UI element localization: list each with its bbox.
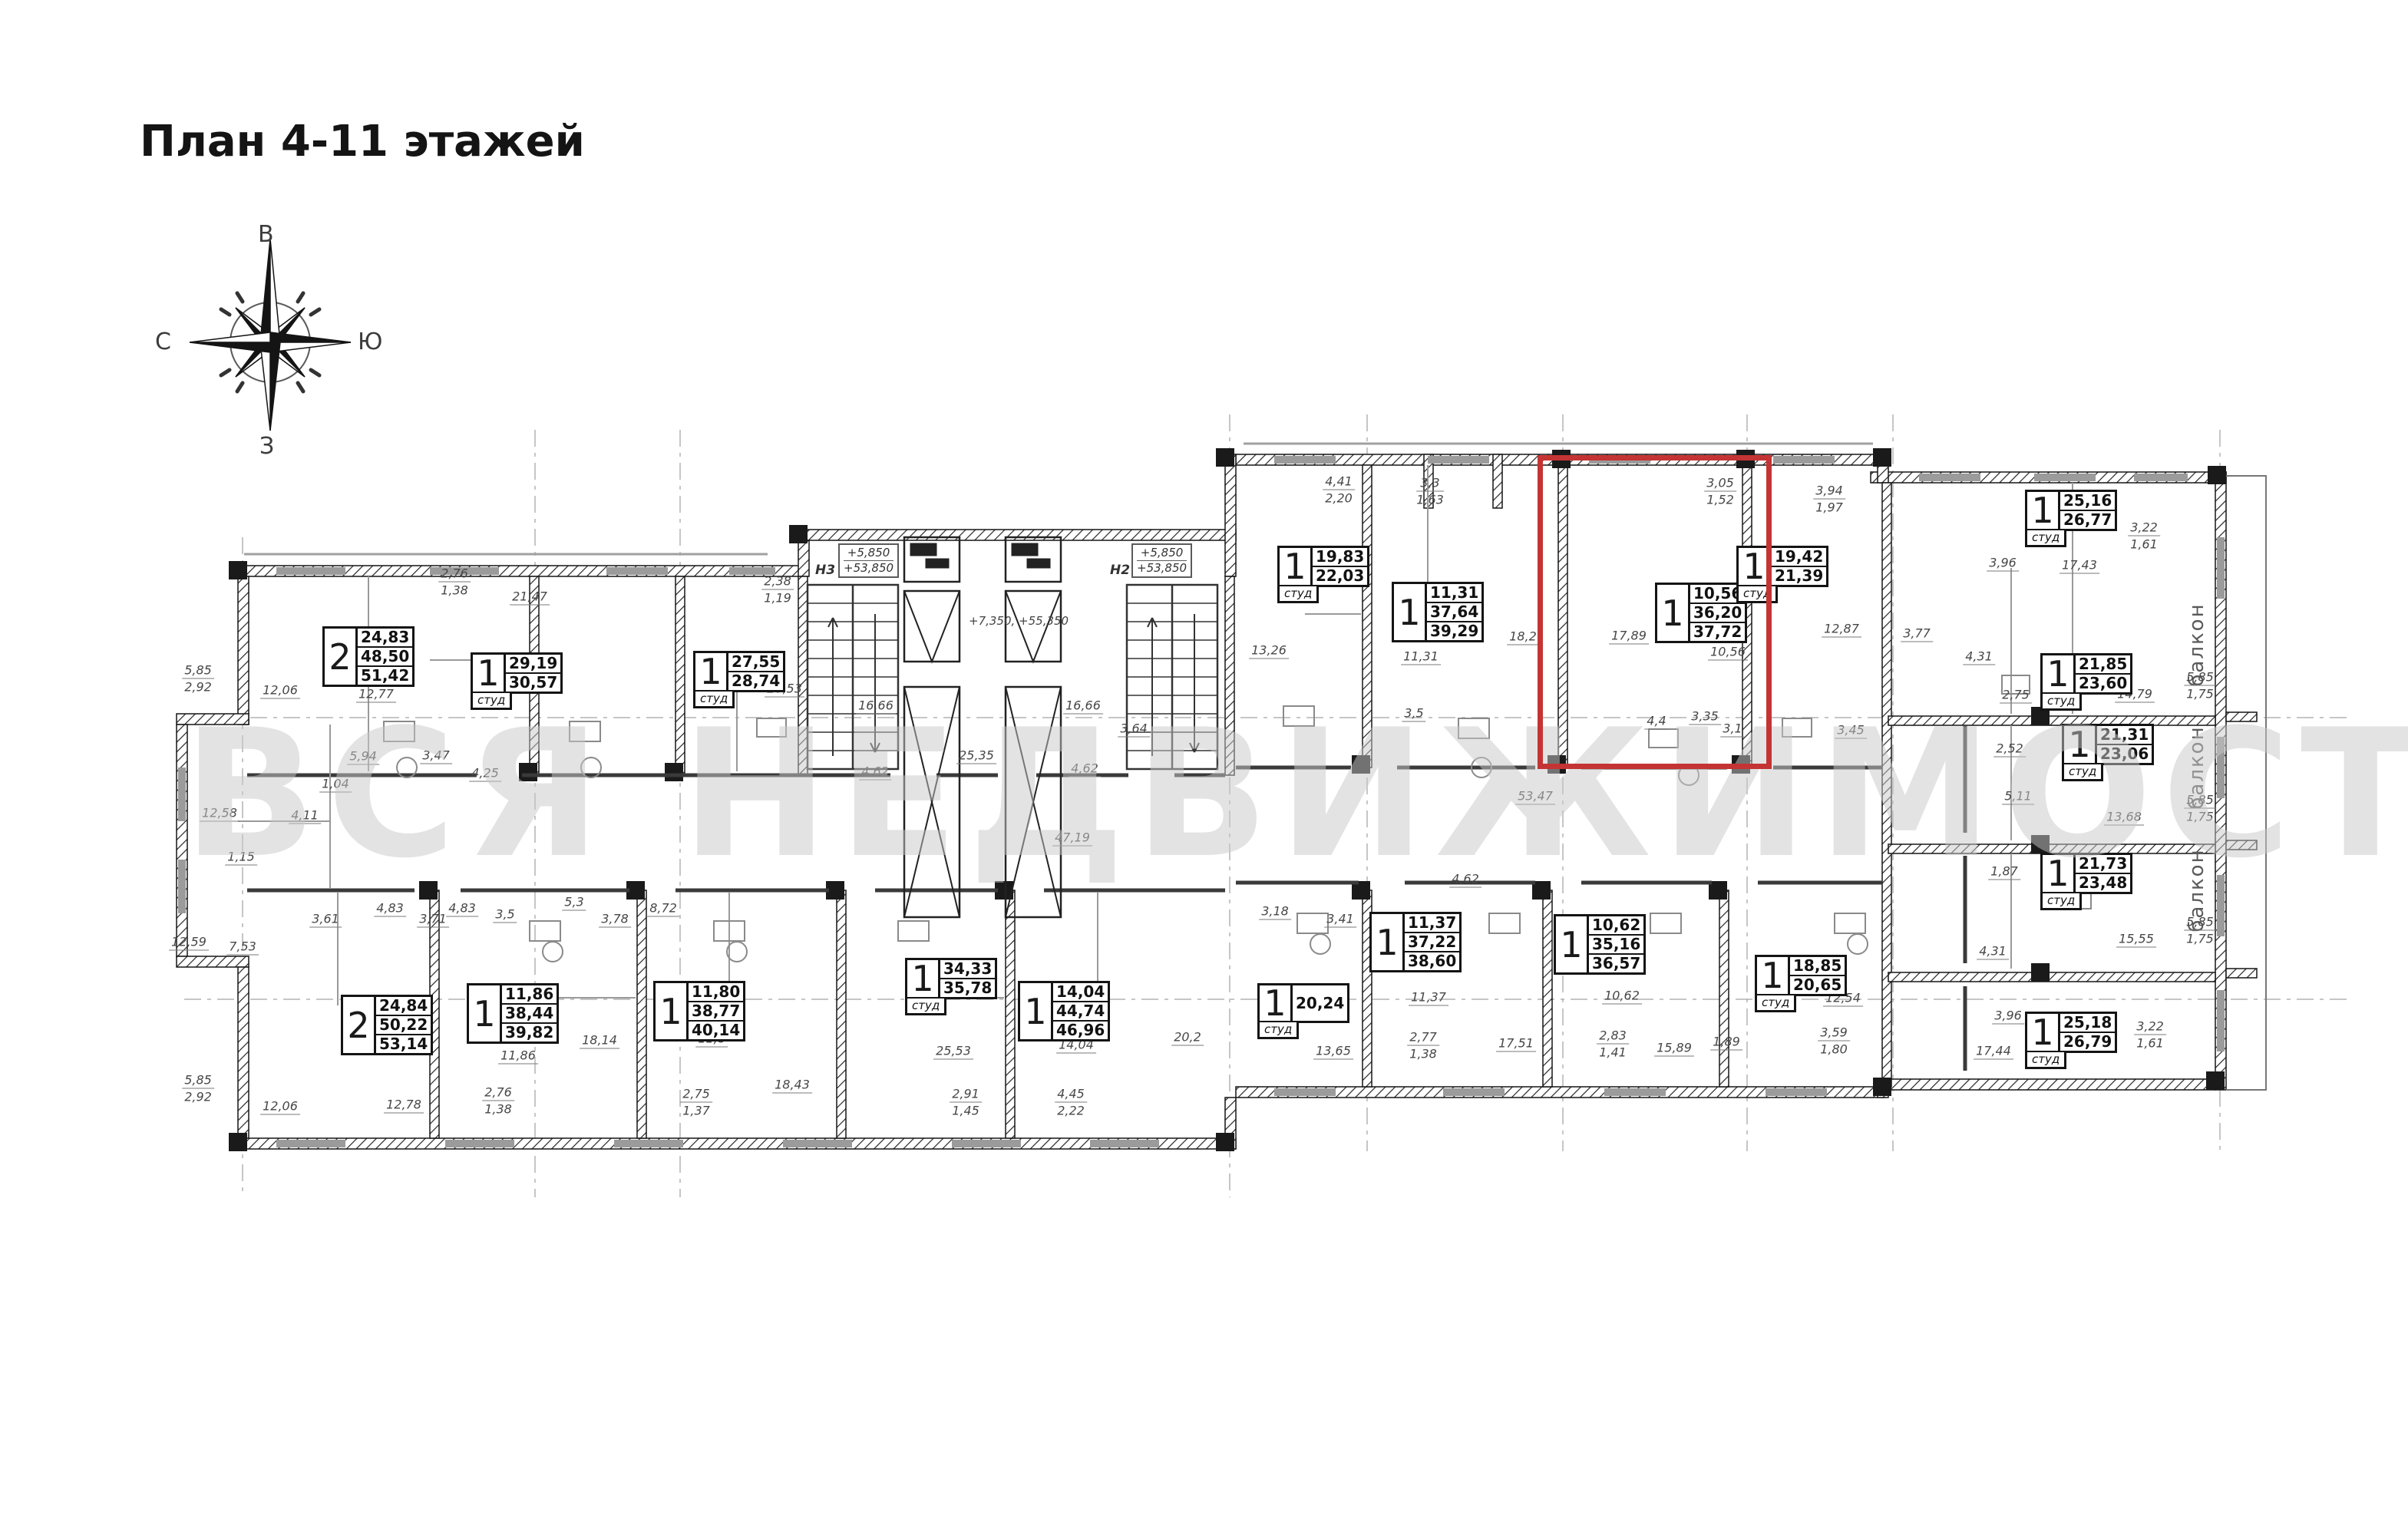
dimension: 3,41 bbox=[1324, 912, 1356, 928]
dimension: 5,851,75 bbox=[2184, 793, 2216, 824]
level-upper: +5,850 bbox=[844, 546, 894, 561]
unit-area-value: 37,22 bbox=[1405, 933, 1459, 952]
core-elevation-note: +7,350, +55,350 bbox=[969, 614, 1069, 628]
dimension: 13,26 bbox=[1249, 643, 1289, 659]
unit-studio-tag: студ bbox=[1755, 994, 1796, 1012]
stair-tag-right: Н2 bbox=[1110, 563, 1130, 578]
unit-areas: 27,5528,74 bbox=[728, 653, 783, 690]
unit-area-value: 24,83 bbox=[358, 629, 412, 648]
dimension: 3,45 bbox=[1835, 723, 1867, 739]
dimension: 4,31 bbox=[1963, 649, 1995, 665]
unit-areas: 20,24 bbox=[1293, 985, 1347, 1021]
unit-area-value: 25,16 bbox=[2060, 492, 2115, 511]
compass-label-left: С bbox=[155, 328, 171, 355]
unit-room-count: 1 bbox=[2043, 855, 2076, 892]
unit-label: 111,3737,2238,60 bbox=[1369, 912, 1462, 972]
dimension: 13,68 bbox=[2104, 810, 2144, 826]
level-upper: +5,850 bbox=[1137, 546, 1187, 561]
unit-area-value: 20,65 bbox=[1790, 976, 1845, 994]
dimension: 4,25 bbox=[469, 766, 501, 782]
stair-levels-left: +5,850 +53,850 bbox=[838, 543, 899, 578]
dimension: 20,2 bbox=[1171, 1030, 1204, 1046]
unit-area-value: 44,74 bbox=[1053, 1002, 1108, 1022]
unit-areas: 14,0444,7446,96 bbox=[1053, 983, 1108, 1039]
unit-label: 111,8038,7740,14 bbox=[653, 981, 745, 1041]
unit-studio-tag: студ bbox=[471, 692, 512, 710]
walls bbox=[177, 454, 2257, 1149]
elevator-2 bbox=[1006, 537, 1061, 917]
unit-label: 121,8523,60студ bbox=[2040, 653, 2132, 695]
unit-room-count: 1 bbox=[2043, 655, 2076, 692]
unit-room-count: 1 bbox=[907, 960, 940, 997]
unit-areas: 11,3737,2238,60 bbox=[1405, 914, 1459, 970]
dimension: 2,75 bbox=[2000, 688, 2032, 704]
dimension: 3,591,80 bbox=[1818, 1025, 1850, 1057]
dimension: 2,761,38 bbox=[438, 566, 471, 598]
dimension: 25,53 bbox=[933, 1044, 973, 1060]
unit-area-value: 53,14 bbox=[376, 1035, 431, 1053]
unit-room-count: 1 bbox=[1394, 584, 1427, 640]
dimension: 1,89 bbox=[1710, 1035, 1742, 1051]
compass-label-top: В bbox=[258, 221, 274, 248]
dimension: 4,11 bbox=[289, 808, 321, 824]
unit-label: 111,3137,6439,29 bbox=[1392, 582, 1484, 642]
dimension: 4,83 bbox=[374, 901, 406, 917]
dimension: 2,761,38 bbox=[482, 1085, 514, 1117]
dimension: 12,87 bbox=[1822, 622, 1861, 638]
unit-area-value: 11,80 bbox=[689, 983, 743, 1002]
dimension: 11,31 bbox=[1401, 649, 1441, 665]
unit-area-value: 14,04 bbox=[1053, 983, 1108, 1002]
floor-plan-page: План 4-11 этажей bbox=[0, 0, 2408, 1535]
unit-studio-tag: студ bbox=[2062, 763, 2103, 781]
unit-area-value: 22,03 bbox=[1313, 567, 1367, 585]
dimension: 3,47 bbox=[420, 748, 452, 764]
dimension: 13,65 bbox=[1313, 1044, 1353, 1060]
dimension: 2,911,45 bbox=[950, 1087, 982, 1118]
unit-area-value: 11,86 bbox=[502, 985, 557, 1005]
unit-area-value: 10,62 bbox=[1589, 916, 1643, 936]
dimension: 3,77 bbox=[1901, 626, 1933, 642]
level-lower: +53,850 bbox=[844, 561, 894, 576]
unit-area-value: 37,64 bbox=[1427, 603, 1481, 622]
unit-studio-tag: студ bbox=[2025, 529, 2066, 547]
unit-area-value: 23,06 bbox=[2097, 745, 2152, 763]
dimension: 1,04 bbox=[319, 777, 352, 793]
staircase-left bbox=[808, 585, 898, 769]
unit-room-count: 1 bbox=[1556, 916, 1589, 972]
dimension: 4,62 bbox=[859, 764, 891, 781]
dimension: 5,94 bbox=[347, 749, 379, 765]
unit-room-count: 1 bbox=[1260, 985, 1293, 1021]
unit-studio-tag: студ bbox=[2040, 892, 2082, 910]
unit-area-value: 18,85 bbox=[1790, 957, 1845, 976]
unit-label: 134,3335,78студ bbox=[905, 958, 997, 999]
unit-room-count: 1 bbox=[2064, 726, 2097, 763]
highlighted-unit-outline bbox=[1538, 455, 1772, 769]
unit-areas: 21,7323,48 bbox=[2076, 855, 2130, 892]
unit-area-value: 40,14 bbox=[689, 1022, 743, 1039]
unit-area-value: 23,60 bbox=[2076, 675, 2130, 692]
unit-areas: 25,1826,79 bbox=[2060, 1014, 2115, 1051]
unit-area-value: 36,57 bbox=[1589, 955, 1643, 972]
unit-area-value: 38,44 bbox=[502, 1005, 557, 1024]
unit-studio-tag: студ bbox=[1257, 1021, 1299, 1039]
unit-room-count: 2 bbox=[325, 629, 358, 685]
unit-area-value: 39,29 bbox=[1427, 622, 1481, 640]
dimension: 4,452,22 bbox=[1055, 1087, 1087, 1118]
unit-areas: 21,3123,06 bbox=[2097, 726, 2152, 763]
staircase-right bbox=[1127, 585, 1217, 769]
unit-areas: 19,8322,03 bbox=[1313, 548, 1367, 585]
unit-room-count: 1 bbox=[2027, 492, 2060, 529]
dimension: 3,78 bbox=[599, 912, 631, 928]
dimension: 3,64 bbox=[1118, 721, 1150, 738]
dimension: 4,62 bbox=[1069, 761, 1101, 777]
dimension: 11,37 bbox=[1409, 990, 1448, 1006]
unit-area-value: 48,50 bbox=[358, 648, 412, 667]
dimension: 3,31,63 bbox=[1416, 476, 1444, 507]
unit-label: 125,1626,77студ bbox=[2025, 490, 2117, 531]
dimension: 47,19 bbox=[1052, 830, 1092, 847]
dimension: 12,06 bbox=[260, 683, 300, 699]
unit-area-value: 11,31 bbox=[1427, 584, 1481, 603]
dimension: 17,51 bbox=[1496, 1036, 1536, 1052]
unit-label: 125,1826,79студ bbox=[2025, 1012, 2117, 1053]
dimension: 18,43 bbox=[772, 1078, 812, 1094]
unit-label: 111,8638,4439,82 bbox=[467, 983, 559, 1044]
dimension: 3,96 bbox=[1987, 556, 2019, 572]
dimension: 3,5 bbox=[1402, 706, 1425, 722]
unit-area-value: 35,78 bbox=[940, 979, 995, 997]
unit-area-value: 35,16 bbox=[1589, 936, 1643, 955]
unit-area-value: 20,24 bbox=[1293, 995, 1347, 1012]
dimension: 5,3 bbox=[562, 895, 586, 911]
dimension: 3,5 bbox=[493, 907, 517, 923]
stair-tag-left: Н3 bbox=[815, 563, 835, 578]
dimension: 2,751,37 bbox=[680, 1087, 712, 1118]
unit-area-value: 26,79 bbox=[2060, 1033, 2115, 1051]
dimension: 1,15 bbox=[225, 850, 257, 866]
dimension: 25,35 bbox=[956, 748, 996, 764]
unit-room-count: 1 bbox=[469, 985, 502, 1041]
dimension: 2,381,19 bbox=[761, 574, 794, 606]
unit-area-value: 25,18 bbox=[2060, 1014, 2115, 1033]
dimension: 3,221,61 bbox=[2128, 520, 2160, 552]
dimension: 15,55 bbox=[2116, 932, 2156, 948]
dimension: 1,87 bbox=[1988, 864, 2020, 880]
unit-area-value: 24,84 bbox=[376, 997, 431, 1016]
unit-area-value: 39,82 bbox=[502, 1024, 557, 1041]
dimension: 4,83 bbox=[446, 901, 478, 917]
unit-area-value: 46,96 bbox=[1053, 1022, 1108, 1039]
dimension: 3,61 bbox=[309, 912, 342, 928]
dimension: 8,72 bbox=[647, 901, 679, 917]
unit-studio-tag: студ bbox=[1277, 585, 1319, 603]
unit-areas: 25,1626,77 bbox=[2060, 492, 2115, 529]
unit-label: 224,8450,2253,14 bbox=[341, 995, 433, 1055]
unit-room-count: 1 bbox=[2027, 1014, 2060, 1051]
dimension: 18,14 bbox=[580, 1033, 619, 1049]
unit-label: 127,5528,74студ bbox=[693, 651, 785, 692]
unit-area-value: 29,19 bbox=[506, 655, 560, 674]
unit-label: 224,8348,5051,42 bbox=[322, 626, 415, 687]
unit-area-value: 19,83 bbox=[1313, 548, 1367, 567]
dimension: 5,852,92 bbox=[182, 1073, 214, 1104]
dimension: 4,31 bbox=[1977, 944, 2009, 960]
stair-levels-right: +5,850 +53,850 bbox=[1131, 543, 1192, 578]
dimension: 4,412,20 bbox=[1323, 474, 1355, 506]
unit-areas: 29,1930,57 bbox=[506, 655, 560, 692]
unit-area-value: 21,85 bbox=[2076, 655, 2130, 675]
unit-areas: 11,3137,6439,29 bbox=[1427, 584, 1481, 640]
dimension: 5,852,92 bbox=[182, 663, 214, 695]
unit-areas: 18,8520,65 bbox=[1790, 957, 1845, 994]
dimension: 2,52 bbox=[1993, 741, 2026, 758]
dimension: 3,71 bbox=[417, 912, 449, 928]
dimension: 17,44 bbox=[1974, 1044, 2013, 1060]
dimension: 3,96 bbox=[1992, 1008, 2024, 1025]
unit-label: 120,24студ bbox=[1257, 983, 1349, 1023]
unit-area-value: 26,77 bbox=[2060, 511, 2115, 529]
balcony-outline bbox=[2226, 476, 2266, 1090]
unit-area-value: 38,60 bbox=[1405, 952, 1459, 970]
dimension: 3,941,97 bbox=[1813, 484, 1845, 515]
dimension: 12,06 bbox=[260, 1099, 300, 1115]
unit-room-count: 1 bbox=[695, 653, 728, 690]
unit-area-value: 34,33 bbox=[940, 960, 995, 979]
unit-studio-tag: студ bbox=[905, 997, 946, 1015]
dimension: 12,59 bbox=[169, 935, 209, 951]
unit-areas: 19,4221,39 bbox=[1772, 548, 1826, 585]
dimension: 15,89 bbox=[1654, 1041, 1694, 1057]
dimension: 3,221,61 bbox=[2134, 1019, 2166, 1051]
unit-area-value: 51,42 bbox=[358, 667, 412, 685]
dimension: 16,66 bbox=[856, 698, 896, 715]
unit-room-count: 1 bbox=[473, 655, 506, 692]
dimension: 21,47 bbox=[510, 589, 550, 606]
unit-area-value: 30,57 bbox=[506, 674, 560, 692]
unit-area-value: 11,37 bbox=[1405, 914, 1459, 933]
page-title: План 4-11 этажей bbox=[140, 117, 585, 167]
unit-area-value: 21,73 bbox=[2076, 855, 2130, 874]
unit-areas: 34,3335,78 bbox=[940, 960, 995, 997]
unit-area-value: 27,55 bbox=[728, 653, 783, 672]
compass-label-bottom: З bbox=[259, 433, 274, 460]
unit-area-value: 38,77 bbox=[689, 1002, 743, 1022]
level-lower: +53,850 bbox=[1137, 561, 1187, 576]
unit-area-value: 19,42 bbox=[1772, 548, 1826, 567]
dimension: 2,771,38 bbox=[1407, 1030, 1439, 1061]
dimension: 53,47 bbox=[1515, 789, 1555, 805]
dimension: 12,58 bbox=[200, 806, 239, 822]
unit-room-count: 1 bbox=[1372, 914, 1405, 970]
dimension: 3,18 bbox=[1259, 904, 1291, 920]
unit-area-value: 28,74 bbox=[728, 672, 783, 690]
unit-area-value: 21,31 bbox=[2097, 726, 2152, 745]
unit-label: 119,8322,03студ bbox=[1277, 546, 1369, 587]
unit-room-count: 1 bbox=[656, 983, 689, 1039]
unit-areas: 11,8038,7740,14 bbox=[689, 983, 743, 1039]
dimension: 5,851,75 bbox=[2184, 670, 2216, 701]
dimension: 18,2 bbox=[1507, 629, 1539, 645]
dimension: 5,851,75 bbox=[2184, 915, 2216, 946]
dimension: 7,53 bbox=[226, 939, 259, 956]
dimension: 5,11 bbox=[2002, 789, 2034, 805]
dimension: 11,86 bbox=[498, 1048, 538, 1065]
unit-areas: 10,6235,1636,57 bbox=[1589, 916, 1643, 972]
compass-rose: В Ю З С bbox=[163, 227, 378, 457]
unit-room-count: 1 bbox=[1280, 548, 1313, 585]
unit-label: 110,6235,1636,57 bbox=[1554, 914, 1646, 975]
unit-label: 121,3123,06студ bbox=[2062, 724, 2154, 765]
unit-label: 118,8520,65студ bbox=[1755, 955, 1847, 996]
dimension: 10,62 bbox=[1602, 989, 1642, 1005]
unit-area-value: 23,48 bbox=[2076, 874, 2130, 892]
unit-room-count: 2 bbox=[343, 997, 376, 1053]
dimension: 2,831,41 bbox=[1597, 1028, 1629, 1060]
unit-label: 129,1930,57студ bbox=[471, 652, 563, 694]
unit-areas: 11,8638,4439,82 bbox=[502, 985, 557, 1041]
dimension: 12,77 bbox=[356, 687, 396, 703]
compass-star bbox=[163, 227, 378, 457]
dimension: 4,62 bbox=[1449, 872, 1481, 888]
unit-room-count: 1 bbox=[1757, 957, 1790, 994]
unit-label: 114,0444,7446,96 bbox=[1018, 981, 1110, 1041]
unit-area-value: 21,39 bbox=[1772, 567, 1826, 585]
unit-studio-tag: студ bbox=[693, 690, 735, 708]
unit-area-value: 50,22 bbox=[376, 1016, 431, 1035]
unit-areas: 24,8450,2253,14 bbox=[376, 997, 431, 1053]
unit-label: 121,7323,48студ bbox=[2040, 853, 2132, 894]
unit-room-count: 1 bbox=[1020, 983, 1053, 1039]
unit-areas: 24,8348,5051,42 bbox=[358, 629, 412, 685]
unit-studio-tag: студ bbox=[2040, 692, 2082, 711]
unit-studio-tag: студ bbox=[2025, 1051, 2066, 1069]
compass-label-right: Ю bbox=[358, 328, 382, 355]
dimension: 17,43 bbox=[2060, 558, 2099, 574]
unit-areas: 21,8523,60 bbox=[2076, 655, 2130, 692]
dimension: 16,66 bbox=[1063, 698, 1103, 715]
dimension: 12,78 bbox=[384, 1098, 424, 1114]
elevator-1 bbox=[904, 537, 960, 917]
